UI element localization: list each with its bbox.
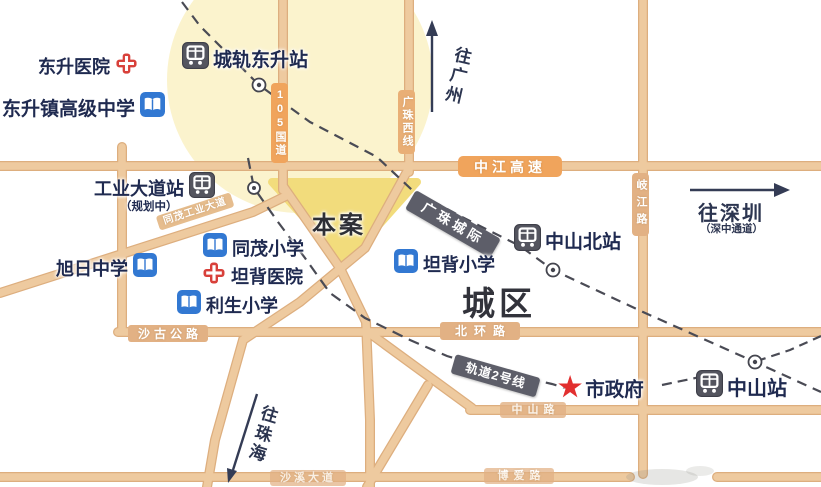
train-station-icon (189, 172, 215, 203)
poi-xuri-middle-school: 旭日中学 (56, 253, 157, 282)
scan-smudge-small (686, 466, 714, 476)
rail-stop-circle-icon (749, 356, 762, 369)
schematic-location-map: 105国道 广珠西线 中江高速 同茂工业大道 岐江路 北环路 沙古公路 中山路 … (0, 0, 821, 487)
red-cross-icon (202, 261, 226, 290)
rail-stop-circle-icon (248, 182, 260, 194)
poi-label: 坦背医院 (231, 263, 303, 289)
poi-label: 中山北站 (545, 227, 621, 254)
school-book-icon (394, 249, 418, 278)
road-badge-zhongjiang-expressway: 中江高速 (458, 156, 562, 177)
red-star-icon: ★ (558, 374, 582, 401)
direction-shenzhong-corridor: （深中通道） (700, 221, 763, 236)
poi-tongmao-primary-school: 同茂小学 (203, 233, 304, 262)
poi-label: 利生小学 (206, 292, 278, 318)
road-badge-qijiang-road: 岐江路 (632, 173, 649, 236)
red-cross-icon (115, 52, 138, 80)
poi-label: 本案 (312, 205, 366, 240)
school-book-icon (203, 233, 227, 262)
poi-dongsheng-highschool: 东升镇高级中学 (2, 92, 165, 123)
metro-line2-rail-line-east (662, 377, 700, 385)
poi-label: 工业大道站 (94, 175, 184, 201)
to-shenzhen-arrowhead (774, 183, 790, 197)
road-badge-zhongshan-road: 中山路 (500, 402, 566, 418)
poi-tanbei-hospital: 坦背医院 (202, 261, 303, 290)
poi-zhongshan-north-station: 中山北站 (514, 224, 621, 257)
poi-label: 东升医院 (38, 53, 110, 79)
train-station-icon (182, 42, 209, 75)
road-badge-guangzhu-west: 广珠西线 (398, 90, 415, 154)
rail-branch-line (757, 336, 821, 361)
poi-label: 市政府 (585, 373, 644, 402)
poi-urban-district-label: 城区 (462, 277, 536, 325)
poi-label: 城轨东升站 (213, 45, 308, 72)
poi-tanbei-primary-school: 坦背小学 (394, 249, 495, 278)
poi-chenggui-dongsheng-station: 城轨东升站 (182, 42, 308, 75)
school-book-icon (133, 253, 157, 282)
poi-label: 旭日中学 (56, 255, 128, 281)
poi-dongsheng-hospital: 东升医院 (38, 52, 138, 80)
road-badge-shagu-highway: 沙古公路 (128, 325, 208, 342)
rail-stop-circle-icon (547, 264, 560, 277)
poi-label: 同茂小学 (232, 235, 304, 261)
poi-gongye-planning-note: （规划中） (120, 198, 178, 214)
poi-lisheng-primary-school: 利生小学 (177, 290, 278, 319)
school-book-icon (140, 92, 165, 123)
school-book-icon (177, 290, 201, 319)
train-station-icon (696, 370, 723, 403)
train-station-icon (514, 224, 541, 257)
poi-label: 中山站 (727, 372, 787, 401)
planning-note-label: （规划中） (120, 198, 178, 214)
rail-stop-circle-icon (253, 79, 266, 92)
road-badge-shaxi-avenue: 沙溪大道 (270, 470, 346, 486)
poi-label: 东升镇高级中学 (2, 94, 135, 121)
poi-label: 城区 (462, 277, 536, 325)
poi-city-government: ★ 市政府 (558, 373, 644, 402)
road-badge-g105: 105国道 (271, 83, 288, 163)
to-guangzhou-arrowhead (426, 20, 438, 36)
poi-label: 坦背小学 (423, 251, 495, 277)
poi-project-site-label: 本案 (312, 205, 366, 240)
road-badge-boai-road: 博爱路 (484, 468, 554, 484)
poi-zhongshan-station: 中山站 (696, 370, 787, 403)
